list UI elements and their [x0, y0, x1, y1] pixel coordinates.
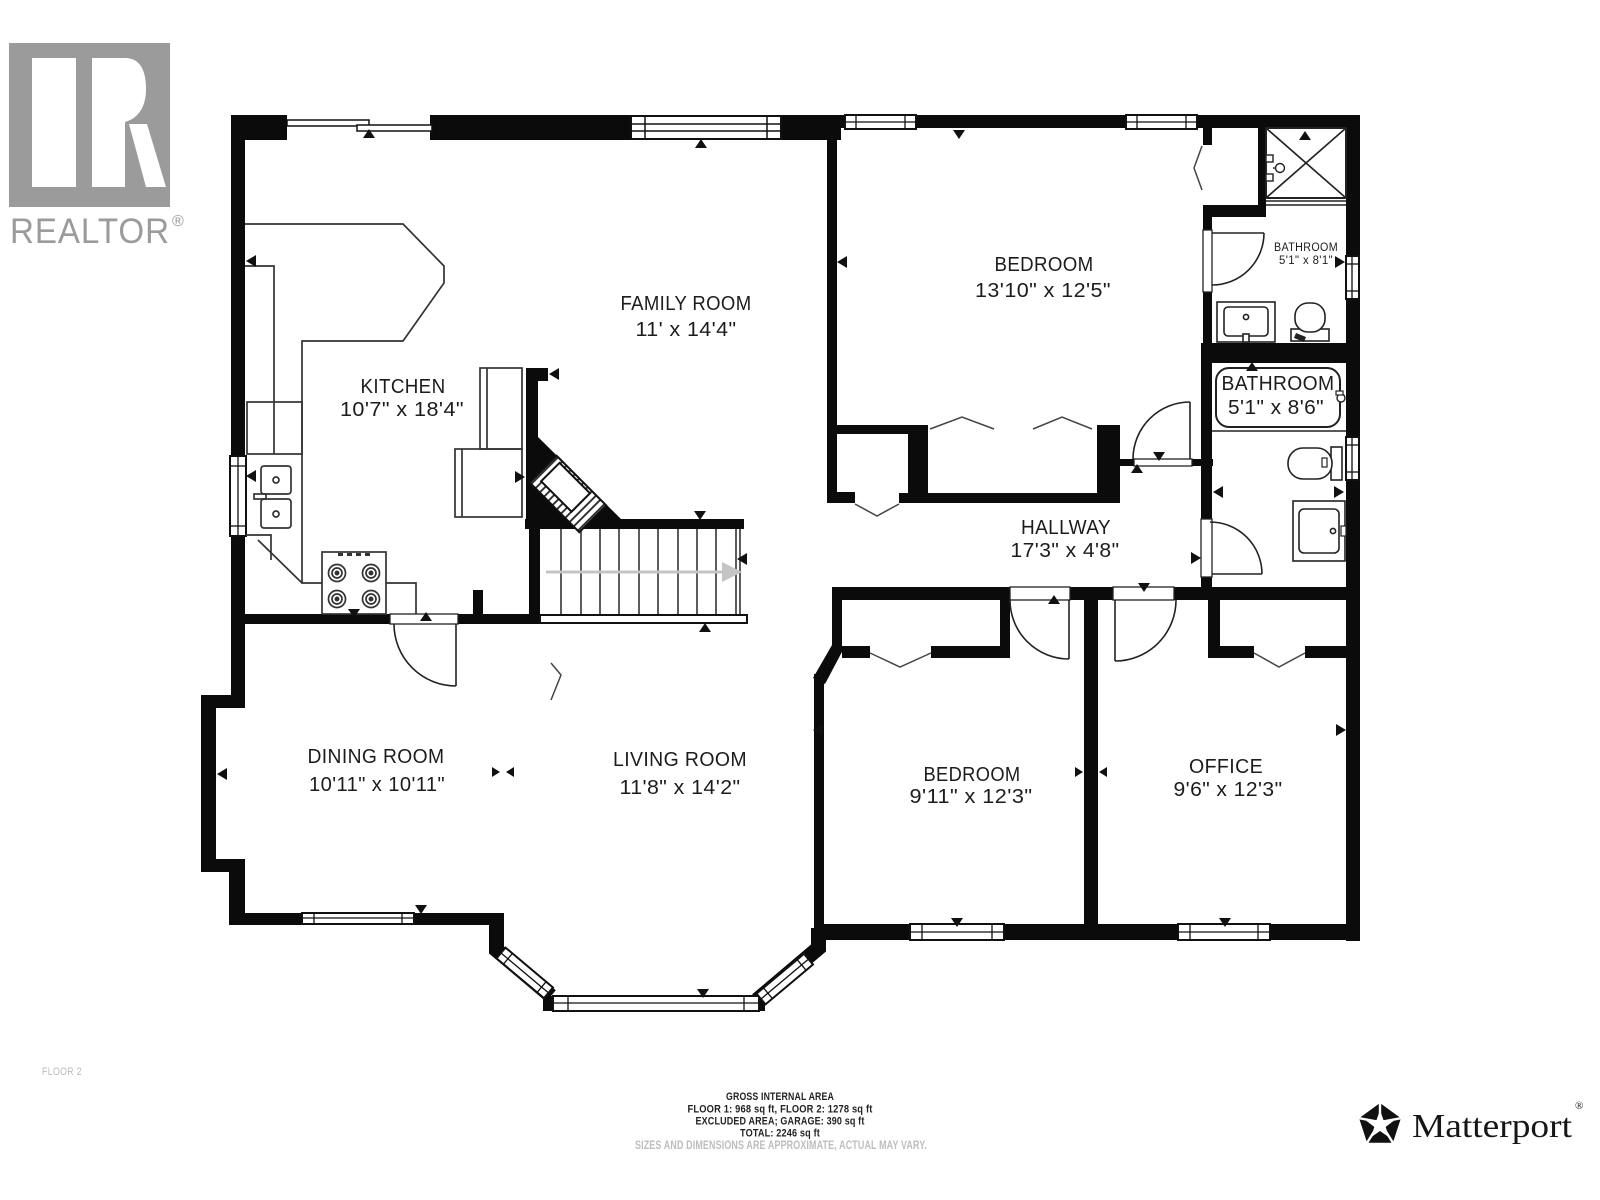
- svg-text:GROSS INTERNAL AREA: GROSS INTERNAL AREA: [726, 1091, 834, 1103]
- svg-text:BEDROOM: BEDROOM: [924, 764, 1021, 786]
- svg-text:11'8" x 14'2": 11'8" x 14'2": [620, 777, 741, 799]
- svg-text:FLOOR 1: 968 sq ft, FLOOR 2: 1: FLOOR 1: 968 sq ft, FLOOR 2: 1278 sq ft: [688, 1104, 873, 1116]
- svg-text:REALTOR: REALTOR: [10, 212, 170, 251]
- svg-text:BATHROOM: BATHROOM: [1222, 373, 1335, 395]
- svg-text:10'11" x 10'11": 10'11" x 10'11": [309, 774, 445, 796]
- svg-text:5'1" x 8'1": 5'1" x 8'1": [1279, 255, 1333, 267]
- svg-text:LIVING ROOM: LIVING ROOM: [613, 749, 747, 771]
- svg-text:®: ®: [172, 213, 184, 230]
- svg-text:EXCLUDED AREA; GARAGE: 390 sq: EXCLUDED AREA; GARAGE: 390 sq ft: [696, 1116, 865, 1128]
- svg-text:OFFICE: OFFICE: [1189, 756, 1263, 778]
- svg-text:FAMILY ROOM: FAMILY ROOM: [621, 293, 752, 315]
- svg-text:FLOOR 2: FLOOR 2: [42, 1066, 82, 1078]
- svg-text:9'11" x 12'3": 9'11" x 12'3": [910, 786, 1033, 808]
- svg-text:11' x 14'4": 11' x 14'4": [636, 319, 737, 341]
- svg-text:BATHROOM: BATHROOM: [1274, 242, 1338, 254]
- svg-text:TOTAL: 2246 sq ft: TOTAL: 2246 sq ft: [740, 1128, 820, 1140]
- svg-text:HALLWAY: HALLWAY: [1021, 517, 1111, 539]
- svg-text:10'7" x 18'4": 10'7" x 18'4": [340, 399, 464, 421]
- svg-text:17'3" x 4'8": 17'3" x 4'8": [1011, 540, 1120, 562]
- svg-text:9'6" x 12'3": 9'6" x 12'3": [1174, 779, 1283, 801]
- svg-text:®: ®: [1575, 1100, 1583, 1112]
- svg-text:13'10" x 12'5": 13'10" x 12'5": [975, 280, 1111, 302]
- svg-text:5'1" x 8'6": 5'1" x 8'6": [1228, 397, 1324, 419]
- svg-text:BEDROOM: BEDROOM: [995, 254, 1094, 276]
- svg-text:DINING ROOM: DINING ROOM: [308, 746, 445, 768]
- svg-text:Matterport: Matterport: [1412, 1108, 1573, 1145]
- svg-text:SIZES AND DIMENSIONS ARE APPRO: SIZES AND DIMENSIONS ARE APPROXIMATE, AC…: [635, 1140, 927, 1152]
- svg-text:KITCHEN: KITCHEN: [361, 376, 446, 398]
